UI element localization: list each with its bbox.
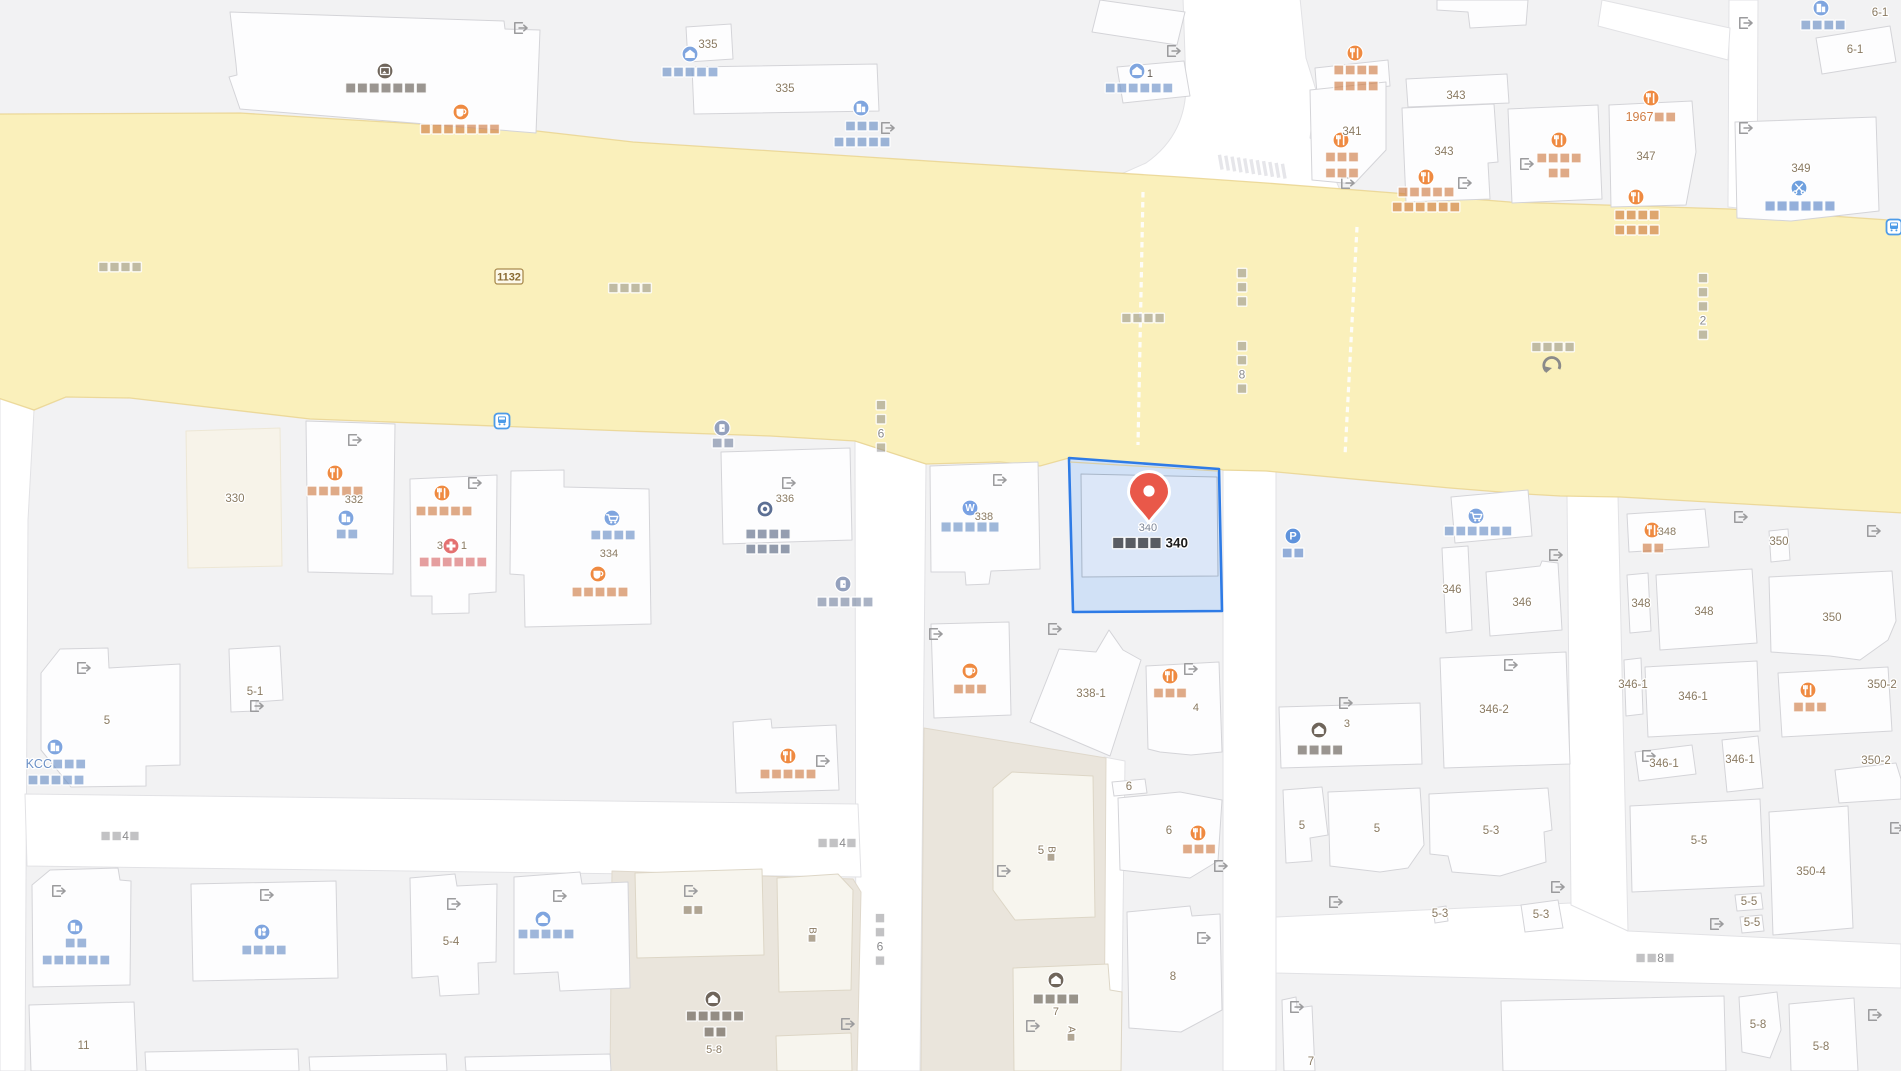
- svg-text:6: 6: [878, 426, 885, 440]
- svg-text:4: 4: [839, 836, 846, 850]
- svg-text:341: 341: [1342, 126, 1361, 138]
- svg-text:8: 8: [1170, 971, 1176, 983]
- svg-text:5-4: 5-4: [443, 936, 460, 948]
- svg-text:340: 340: [1162, 536, 1188, 551]
- svg-text:5-8: 5-8: [1750, 1019, 1767, 1031]
- svg-text:1967: 1967: [1626, 110, 1654, 124]
- svg-text:348: 348: [1694, 606, 1713, 618]
- svg-text:4: 4: [122, 829, 129, 843]
- svg-text:2: 2: [1700, 314, 1707, 328]
- svg-text:5-5: 5-5: [1741, 896, 1758, 908]
- svg-text:5-8: 5-8: [1813, 1041, 1830, 1053]
- svg-text:335: 335: [775, 83, 794, 95]
- svg-text:3: 3: [1344, 718, 1350, 730]
- svg-text:B: B: [807, 927, 818, 934]
- svg-text:5: 5: [1038, 845, 1044, 857]
- svg-text:336: 336: [776, 493, 794, 505]
- svg-text:3: 3: [437, 540, 443, 552]
- svg-text:350-2: 350-2: [1867, 679, 1896, 691]
- svg-text:4: 4: [1193, 702, 1199, 714]
- svg-text:5: 5: [1299, 820, 1305, 832]
- svg-text:P: P: [1289, 531, 1296, 543]
- svg-text:346-2: 346-2: [1479, 704, 1508, 716]
- svg-text:7: 7: [1308, 1056, 1314, 1068]
- svg-text:330: 330: [225, 493, 244, 505]
- svg-text:1: 1: [461, 540, 467, 552]
- svg-text:5-3: 5-3: [1533, 909, 1550, 921]
- svg-text:5-8: 5-8: [706, 1044, 722, 1056]
- svg-text:346: 346: [1512, 597, 1531, 609]
- svg-text:349: 349: [1791, 163, 1810, 175]
- svg-text:6: 6: [1166, 825, 1172, 837]
- svg-text:5-5: 5-5: [1744, 917, 1761, 929]
- svg-text:KCC: KCC: [26, 757, 52, 771]
- svg-text:334: 334: [600, 548, 618, 560]
- svg-text:346-1: 346-1: [1725, 754, 1754, 766]
- svg-text:346-1: 346-1: [1618, 679, 1647, 691]
- svg-text:6-1: 6-1: [1872, 7, 1889, 19]
- svg-text:346-1: 346-1: [1678, 691, 1707, 703]
- svg-text:346: 346: [1442, 584, 1461, 596]
- svg-text:6: 6: [1126, 781, 1132, 793]
- svg-text:1: 1: [1147, 68, 1153, 80]
- svg-text:5-1: 5-1: [247, 686, 264, 698]
- svg-text:5: 5: [1374, 823, 1380, 835]
- svg-text:338-1: 338-1: [1076, 688, 1105, 700]
- svg-text:343: 343: [1434, 146, 1453, 158]
- svg-text:350-4: 350-4: [1796, 866, 1826, 878]
- svg-text:347: 347: [1636, 151, 1655, 163]
- svg-text:11: 11: [78, 1040, 90, 1052]
- svg-text:B: B: [1046, 846, 1057, 853]
- svg-text:6: 6: [877, 939, 884, 953]
- svg-text:8: 8: [1239, 367, 1246, 381]
- svg-text:5-3: 5-3: [1432, 908, 1449, 920]
- svg-text:350: 350: [1822, 612, 1841, 624]
- svg-text:348: 348: [1658, 526, 1676, 538]
- svg-text:W: W: [965, 503, 975, 514]
- svg-text:A: A: [1066, 1026, 1077, 1033]
- svg-text:6-1: 6-1: [1847, 44, 1864, 56]
- svg-text:335: 335: [698, 39, 717, 51]
- svg-text:338: 338: [975, 511, 993, 523]
- svg-text:346-1: 346-1: [1649, 758, 1678, 770]
- svg-text:343: 343: [1446, 90, 1465, 102]
- svg-text:1132: 1132: [497, 272, 521, 284]
- svg-text:332: 332: [345, 494, 363, 506]
- svg-text:348: 348: [1631, 598, 1650, 610]
- svg-text:8: 8: [1657, 951, 1664, 965]
- svg-text:5-3: 5-3: [1483, 825, 1500, 837]
- svg-text:350: 350: [1769, 536, 1788, 548]
- svg-text:7: 7: [1053, 1006, 1059, 1018]
- svg-text:350-2: 350-2: [1861, 755, 1890, 767]
- svg-text:5-5: 5-5: [1691, 835, 1708, 847]
- svg-text:5: 5: [104, 715, 110, 727]
